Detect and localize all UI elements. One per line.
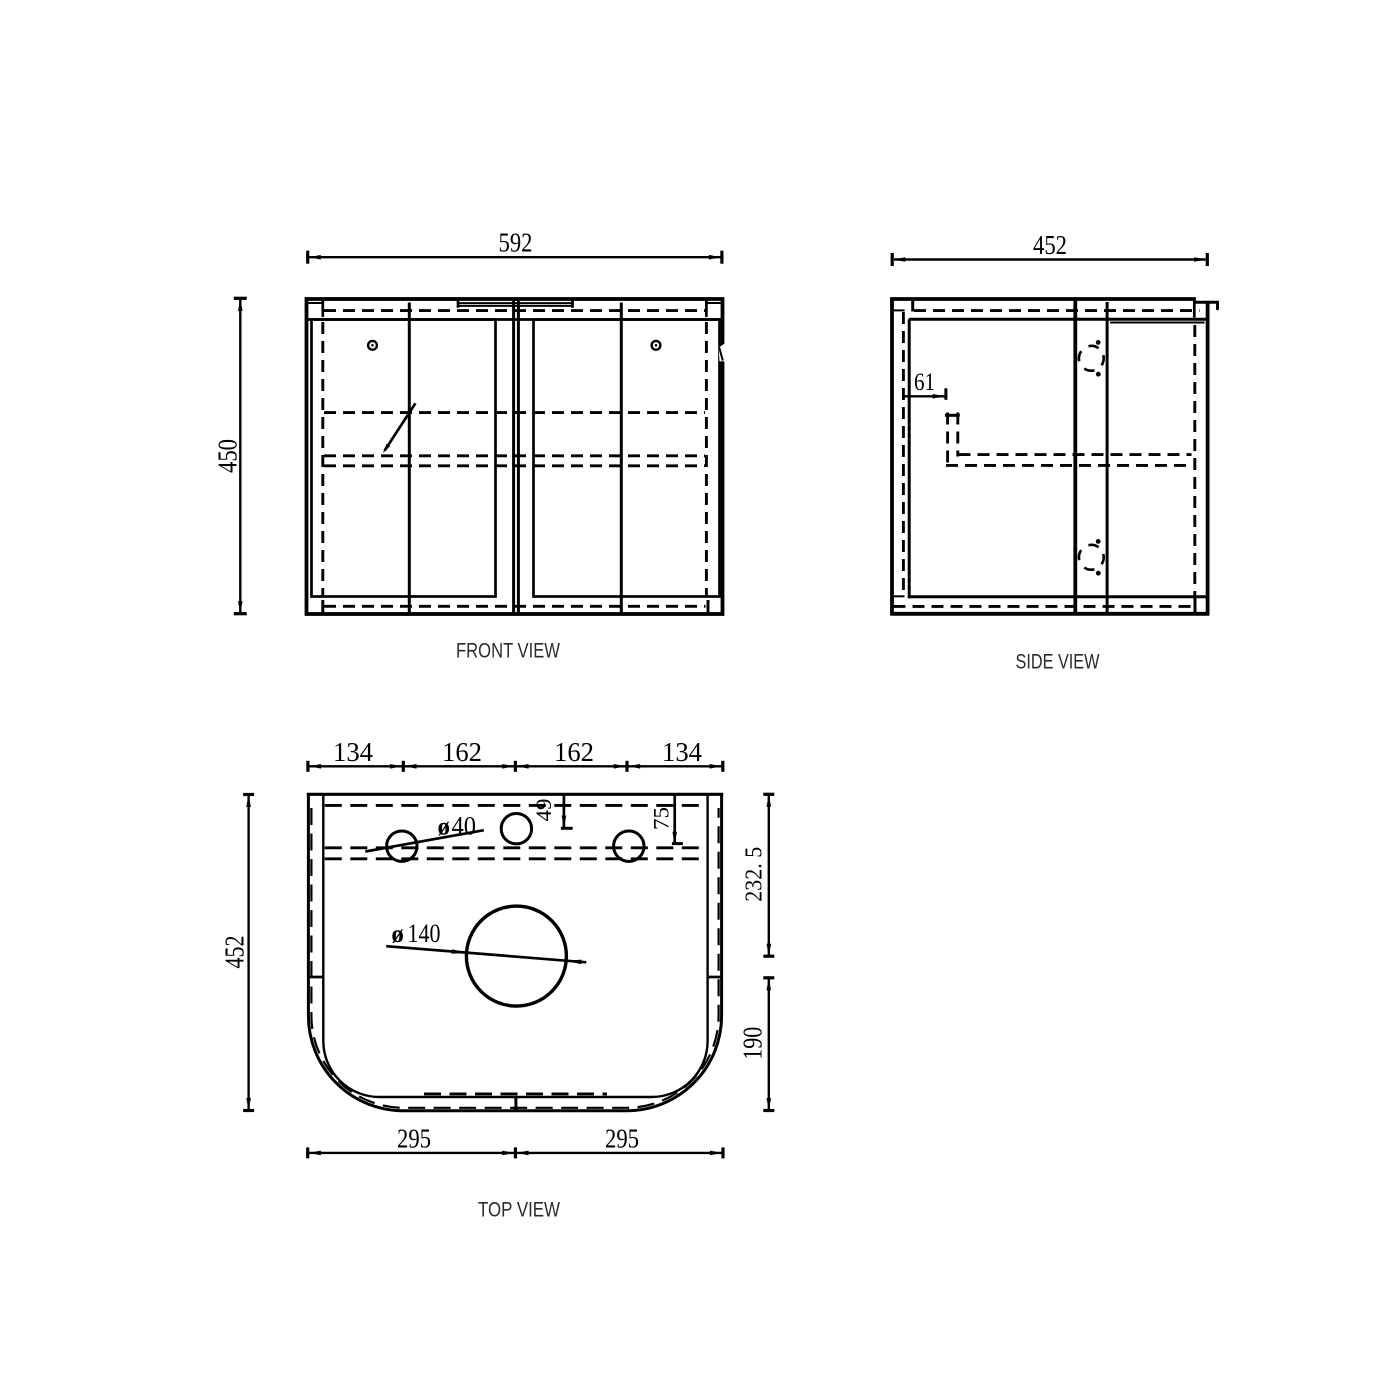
svg-text:134: 134 [333, 737, 373, 767]
svg-text:49: 49 [531, 799, 556, 822]
svg-text:40: 40 [452, 811, 477, 840]
svg-text:162: 162 [442, 737, 482, 767]
svg-text:TOP VIEW: TOP VIEW [478, 1199, 560, 1222]
svg-text:190: 190 [738, 1027, 768, 1060]
svg-text:592: 592 [499, 228, 533, 258]
svg-text:ø: ø [391, 921, 404, 948]
svg-text:ø: ø [438, 813, 451, 840]
svg-text:295: 295 [397, 1123, 431, 1153]
svg-text:75: 75 [649, 807, 674, 830]
svg-text:FRONT VIEW: FRONT VIEW [456, 640, 560, 663]
svg-text:SIDE VIEW: SIDE VIEW [1016, 651, 1100, 674]
svg-text:452: 452 [1033, 230, 1067, 260]
svg-text:232. 5: 232. 5 [741, 847, 768, 902]
svg-text:61: 61 [914, 369, 935, 396]
svg-text:452: 452 [220, 936, 250, 969]
svg-text:162: 162 [554, 737, 594, 767]
svg-text:450: 450 [213, 439, 243, 473]
svg-text:140: 140 [408, 919, 441, 948]
svg-text:295: 295 [605, 1123, 639, 1153]
svg-text:134: 134 [662, 737, 702, 767]
